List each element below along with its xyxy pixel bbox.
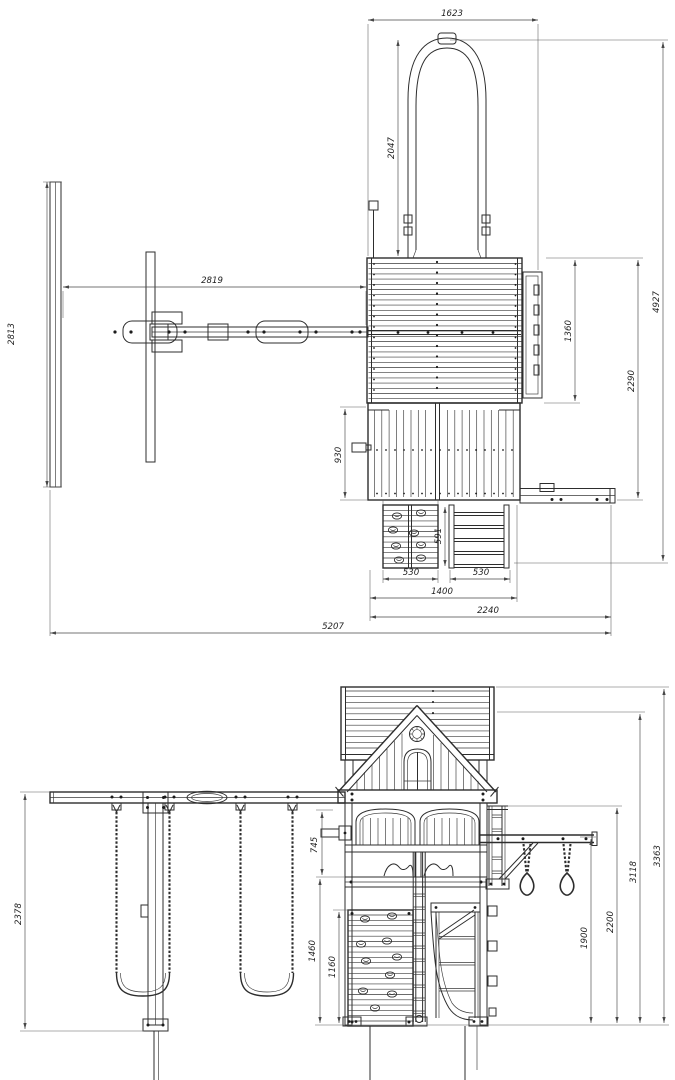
dim-value: 3118 bbox=[629, 861, 639, 883]
dim-value: 2290 bbox=[627, 370, 637, 392]
dim-gable-peak-height: 3118 bbox=[497, 712, 645, 1023]
dim-value: 2378 bbox=[14, 903, 24, 925]
porch-top bbox=[352, 403, 520, 500]
ladder-top bbox=[449, 505, 509, 568]
tower-upper-front bbox=[321, 803, 487, 1025]
dim-value: 591 bbox=[434, 528, 444, 544]
belt-swing-left bbox=[113, 805, 173, 996]
gable-front bbox=[336, 705, 499, 797]
top-view: 1623 2047 2819 2813 13 bbox=[7, 9, 668, 636]
roof-top bbox=[367, 258, 542, 403]
dim-value: 1900 bbox=[580, 927, 590, 949]
dim-aframe-height: 2378 bbox=[14, 792, 144, 1031]
dimensions-top: 1623 2047 2819 2813 13 bbox=[7, 9, 668, 636]
tower-lower-front bbox=[343, 852, 497, 1080]
dim-rockwall-width: 530 bbox=[383, 568, 438, 583]
dim-monkeybar-height: 1900 bbox=[580, 837, 596, 1023]
dim-overall-depth: 4927 bbox=[450, 40, 668, 563]
dim-deck-height: 1460 bbox=[308, 879, 320, 1023]
dim-value: 530 bbox=[473, 568, 490, 578]
dim-value: 1160 bbox=[328, 956, 338, 978]
belt-swing-right bbox=[237, 805, 296, 996]
rockwall-top bbox=[383, 500, 438, 568]
drawing-sheet: 1623 2047 2819 2813 13 bbox=[0, 0, 675, 1080]
playset-drawing: 1623 2047 2819 2813 13 bbox=[0, 0, 675, 1080]
dim-slide-length: 2047 bbox=[387, 40, 398, 256]
dim-value: 3363 bbox=[653, 845, 663, 867]
dim-aframe-depth: 2813 bbox=[7, 182, 62, 487]
dim-value: 745 bbox=[310, 837, 320, 853]
dim-value: 2047 bbox=[387, 137, 397, 159]
trapeze-ring-right bbox=[560, 844, 574, 895]
trapeze-ring-left bbox=[520, 844, 534, 895]
aframe-post-front bbox=[141, 792, 168, 1080]
dim-value: 4927 bbox=[652, 291, 662, 313]
dim-value: 530 bbox=[403, 568, 420, 578]
dim-value: 1360 bbox=[564, 320, 574, 342]
dim-value: 2200 bbox=[606, 911, 616, 933]
dim-value: 2813 bbox=[7, 323, 17, 345]
monkey-bar-front bbox=[480, 806, 597, 895]
dim-porch-depth: 930 bbox=[334, 407, 368, 500]
dim-value: 1460 bbox=[308, 940, 318, 962]
dim-beam-height: 2200 bbox=[508, 806, 622, 1023]
dim-value: 5207 bbox=[322, 622, 344, 632]
swing-beam-top bbox=[113, 312, 368, 352]
dim-value: 1400 bbox=[431, 587, 453, 597]
aframe-top bbox=[50, 182, 155, 487]
dim-value: 1623 bbox=[441, 9, 463, 19]
dim-value: 2819 bbox=[201, 276, 223, 286]
dim-value: 2240 bbox=[477, 606, 499, 616]
dim-beam-span: 2819 bbox=[63, 276, 366, 325]
dim-ladder-width: 530 bbox=[450, 568, 510, 583]
front-view: 2378 745 1460 1160 1900 bbox=[14, 687, 669, 1080]
dim-rail-height: 745 bbox=[310, 810, 345, 877]
monkey-bar-top bbox=[520, 484, 615, 504]
dim-rockwall-height: 1160 bbox=[328, 910, 350, 1023]
dim-tower-depth: 2290 bbox=[617, 260, 643, 500]
dim-value: 930 bbox=[334, 446, 344, 463]
